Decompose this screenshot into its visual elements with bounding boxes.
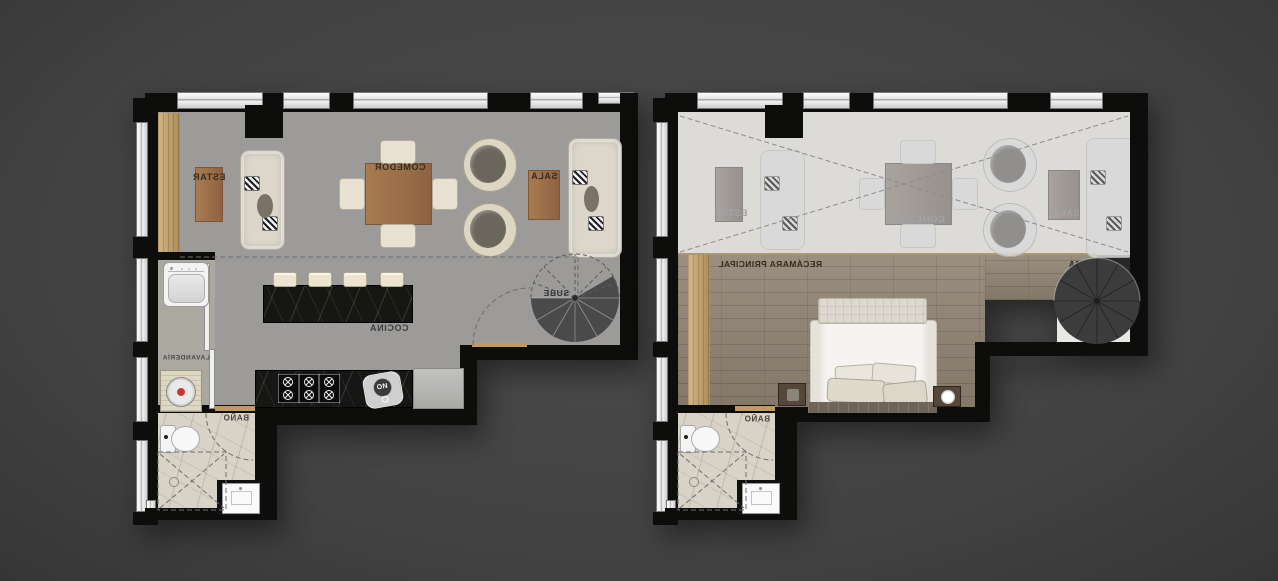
- ghost-chair: [952, 178, 978, 210]
- toilet-flush-button: [684, 435, 688, 439]
- bath-door-sill: [735, 406, 775, 411]
- dining-chair: [380, 224, 416, 248]
- sink-basin: [751, 491, 772, 505]
- stairs-label-sube: SUBE: [543, 288, 569, 298]
- armchair-seat: [470, 210, 506, 248]
- room-label-recamara: RECÁMARA PRINCIPAL: [718, 259, 822, 269]
- ghost-chair: [900, 140, 936, 164]
- nightstand-decor: [787, 389, 799, 401]
- table-lamp: [941, 390, 955, 404]
- water-heater: [166, 377, 196, 407]
- stairs-door-sill: [472, 343, 527, 347]
- washer-knob: [181, 268, 183, 270]
- sink-faucet: [759, 487, 762, 490]
- room-label-lavanderia: LAVANDERÍA: [162, 355, 210, 362]
- kitchen-island: [263, 285, 413, 323]
- ghost-armchair-seat: [990, 210, 1026, 248]
- wood-accent-wall: [158, 113, 180, 255]
- washer-drum: [168, 274, 205, 303]
- washing-machine: [163, 262, 209, 307]
- window: [1050, 92, 1103, 109]
- chevron-pillow: [572, 170, 588, 185]
- side-window: [136, 122, 148, 237]
- bar-stool: [343, 272, 367, 287]
- room-label-bano: BAÑO: [223, 414, 249, 423]
- wall-stub: [133, 237, 158, 258]
- ghost-sofa-right: [1086, 138, 1136, 258]
- room-label-sala: SALA: [531, 171, 558, 181]
- window: [530, 92, 583, 109]
- ghost-pillow: [764, 176, 780, 191]
- washer-knob: [188, 268, 190, 270]
- wall-stub: [133, 422, 158, 440]
- bed-pillow-large: [826, 377, 885, 404]
- stairs-label-baja: BAJA: [1068, 259, 1094, 269]
- sliding-door-panel: [209, 349, 215, 409]
- wall-stub: [133, 98, 158, 122]
- kitchen-sink: ON: [361, 370, 404, 410]
- armchair-seat: [470, 145, 506, 183]
- bar-stool: [273, 272, 297, 287]
- nightstand-right: [933, 386, 961, 407]
- ghost-label-sala: SALA: [1053, 208, 1080, 218]
- floor-plan-upper-level: ESTAR COMEDOR SALA RECÁMARA PRINCIPAL BA…: [660, 88, 1150, 548]
- toilet-bowl: [691, 426, 720, 452]
- stairs-bottom-wall: [462, 345, 638, 360]
- bathroom-sink: [742, 483, 780, 514]
- left-exterior-wall: [148, 93, 158, 525]
- nightstand-left: [778, 383, 806, 406]
- wall-stub: [653, 98, 678, 122]
- toilet-bowl: [171, 426, 200, 452]
- bathroom-sink: [222, 483, 260, 514]
- chevron-pillow: [262, 216, 278, 231]
- room-label-cocina: COCINA: [369, 323, 408, 333]
- washer-knob: [170, 267, 173, 270]
- ghost-label-estar: ESTAR: [715, 208, 748, 218]
- stove: [278, 374, 340, 403]
- wall-stub: [653, 342, 678, 357]
- bar-stool: [308, 272, 332, 287]
- sink-mark: ON: [376, 383, 389, 392]
- wall-stub: [653, 422, 678, 440]
- side-window: [136, 357, 148, 422]
- sink-drain: [381, 395, 389, 403]
- wall-stub: [133, 342, 158, 357]
- room-label-estar: ESTAR: [193, 172, 226, 182]
- laundry-top-wall: [158, 252, 215, 260]
- side-window: [656, 357, 668, 422]
- ghost-chair: [900, 224, 936, 248]
- sink-basin: [231, 491, 252, 505]
- window: [873, 92, 1008, 109]
- ghost-armchair-seat: [990, 145, 1026, 183]
- ghost-pillow: [1090, 170, 1106, 185]
- wall-stub: [653, 237, 678, 258]
- structural-column: [765, 105, 803, 138]
- window: [283, 92, 330, 109]
- room-label-bano: BAÑO: [744, 415, 770, 424]
- side-window: [136, 258, 148, 342]
- bar-stool: [380, 272, 404, 287]
- toilet-flush-button: [164, 435, 168, 439]
- ghost-label-comedor: COMEDOR: [893, 214, 944, 224]
- floor-plan-lower-level: ON ESTAR COMEDOR SALA COCINA SUBE L: [140, 88, 640, 548]
- sink-faucet: [239, 487, 242, 490]
- window: [353, 92, 488, 109]
- dark-backdrop: ON ESTAR COMEDOR SALA COCINA SUBE L: [0, 0, 1278, 581]
- chevron-pillow: [244, 176, 260, 191]
- bath-door-sill: [215, 406, 255, 411]
- structural-column: [245, 105, 283, 138]
- bed-tufted-headboard: [808, 402, 937, 413]
- right-exterior-wall: [620, 93, 638, 360]
- ghost-pillow: [1106, 216, 1122, 231]
- side-window: [656, 258, 668, 342]
- washer-control-panel: [168, 266, 204, 272]
- dining-table: [365, 163, 432, 225]
- room-label-comedor: COMEDOR: [374, 162, 425, 172]
- washer-knob: [195, 268, 197, 270]
- right-exterior-wall: [1130, 93, 1148, 356]
- side-window: [656, 122, 668, 237]
- dining-chair: [339, 178, 365, 210]
- bed-folded-quilt: [818, 298, 927, 324]
- ghost-chair: [859, 178, 885, 210]
- stairs-bottom-wall: [983, 342, 1148, 356]
- refrigerator: [413, 368, 464, 409]
- dining-chair: [380, 140, 416, 164]
- left-exterior-wall: [668, 93, 678, 525]
- ghost-pillow: [782, 216, 798, 231]
- kitchen-bottom-wall: [255, 408, 470, 425]
- dining-chair: [432, 178, 458, 210]
- sofa-tray-table: [584, 186, 599, 212]
- ghost-sofa-left: [760, 150, 805, 250]
- chevron-pillow: [588, 216, 604, 231]
- window: [803, 92, 850, 109]
- sofa-tray-table: [257, 194, 273, 218]
